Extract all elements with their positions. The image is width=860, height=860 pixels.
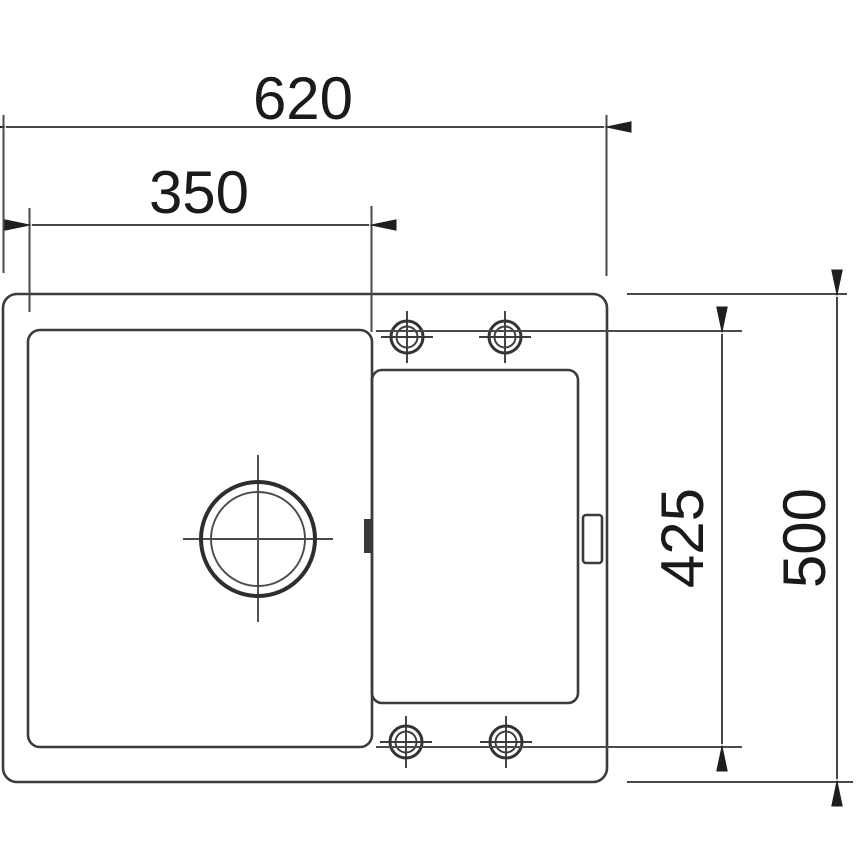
dimension-bowl-width: 350 [30, 159, 372, 332]
dimension-label-620: 620 [253, 65, 353, 132]
overflow-slot [583, 515, 602, 563]
drain-hole [183, 455, 333, 622]
sink-dimension-diagram: 620 350 425 500 [0, 0, 860, 860]
bowl-edge-clip-mark [364, 519, 373, 553]
tap-hole-bottom-left [380, 716, 432, 768]
dimension-label-425: 425 [649, 488, 716, 588]
sink-technical-drawing-canvas: 620 350 425 500 [0, 0, 860, 860]
dimension-inner-height: 425 [376, 331, 742, 747]
tap-hole-top-left [381, 311, 433, 363]
tap-hole-top-right [479, 311, 531, 363]
tap-hole-bottom-right [480, 716, 532, 768]
drainboard-outline [372, 370, 578, 703]
dimension-label-500: 500 [771, 488, 838, 588]
dimension-overall-width: 620 [4, 65, 607, 276]
dimension-label-350: 350 [149, 159, 249, 226]
